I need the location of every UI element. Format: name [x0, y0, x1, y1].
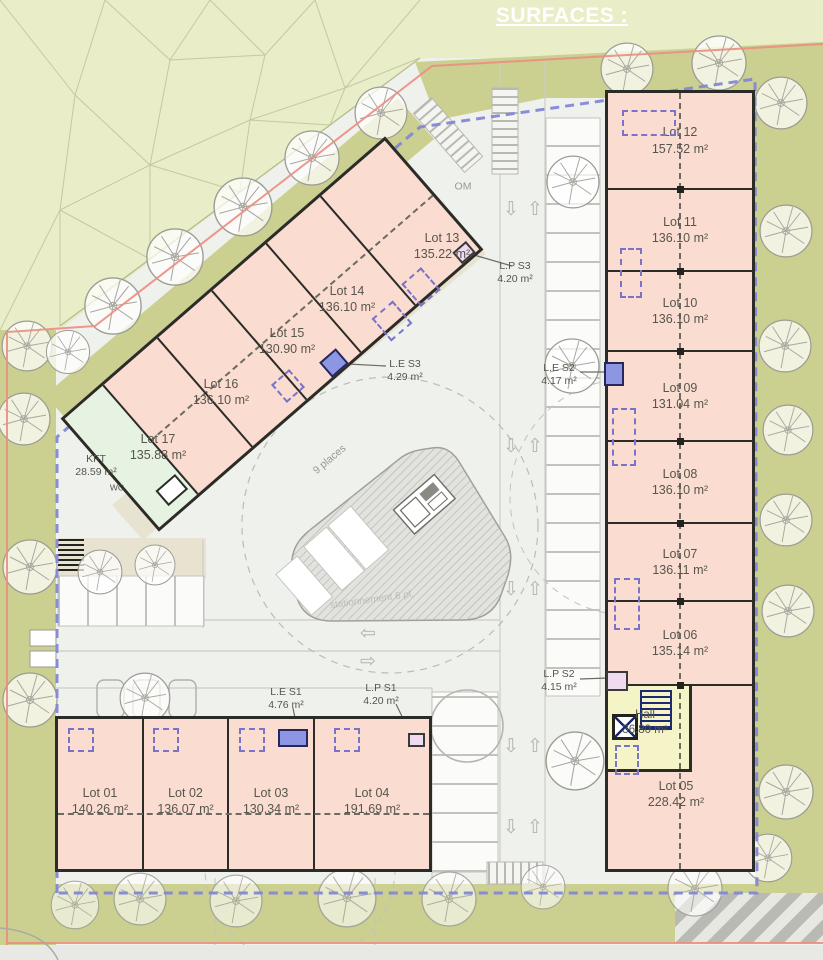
- door-clearance: [615, 745, 639, 775]
- lot-17-label: Lot 17135.88 m²: [130, 431, 186, 464]
- lot-area: 191.69 m²: [344, 801, 400, 817]
- lot-area: 140.26 m²: [72, 801, 128, 817]
- door-clearance: [622, 110, 676, 136]
- arrow-up-icon: ⇧: [527, 437, 543, 456]
- lp-s3-label: L.P S34.20 m²: [497, 260, 533, 286]
- door-clearance: [612, 408, 636, 466]
- lp-s2-label: L.P S24.15 m²: [541, 668, 577, 694]
- lot-15-label: Lot 15130.90 m²: [259, 325, 315, 358]
- le-s2-label: L.E S24.17 m²: [541, 362, 577, 388]
- lot-name: Lot 04: [355, 785, 390, 801]
- door-clearance: [614, 578, 640, 630]
- lot-name: Lot 07: [663, 546, 698, 562]
- lot-14-label: Lot 14136.10 m²: [319, 283, 375, 316]
- lot-name: Lot 03: [254, 785, 289, 801]
- page-title: SURFACES :: [452, 4, 672, 28]
- lot-area: 131.04 m²: [652, 396, 708, 412]
- lot-name: Lot 09: [663, 380, 698, 396]
- arrow-left-icon: ⇦: [360, 624, 376, 643]
- lp-s1-label: L.P S14.20 m²: [363, 682, 399, 708]
- lot-name: Lot 10: [663, 295, 698, 311]
- lot-area: 136.10 m²: [652, 482, 708, 498]
- lot-name: Lot 08: [663, 466, 698, 482]
- le-s1-room: [278, 729, 308, 747]
- lot-area: 135.14 m²: [652, 643, 708, 659]
- arrow-down-icon: ⇩: [503, 437, 519, 456]
- lot-name: Lot 11: [663, 214, 697, 230]
- arrow-down-icon: ⇩: [503, 737, 519, 756]
- door-clearance: [334, 728, 360, 752]
- door-clearance: [68, 728, 94, 752]
- lot-area: 136.10 m²: [652, 311, 708, 327]
- lot-13-label: Lot 13135.22 m²: [414, 230, 470, 263]
- lot-05-label: Lot 05228.42 m²: [648, 778, 704, 811]
- arrow-up-icon: ⇧: [527, 200, 543, 219]
- lot-16-label: Lot 16136.10 m²: [193, 376, 249, 409]
- lot-area: 136.11 m²: [652, 562, 707, 578]
- door-clearance: [153, 728, 179, 752]
- arrow-down-icon: ⇩: [503, 580, 519, 599]
- lp-s2-room: [606, 671, 628, 691]
- arrow-down-icon: ⇩: [503, 200, 519, 219]
- arrow-up-icon: ⇧: [527, 580, 543, 599]
- site-plan: SURFACES : Lot 12 157.52 m² Lot 11 136.1…: [0, 0, 823, 960]
- lot-name: Lot 01: [83, 785, 118, 801]
- arrow-right-icon: ⇨: [360, 652, 376, 671]
- lot-name: Lot 02: [168, 785, 203, 801]
- lot-name: Lot 06: [663, 627, 698, 643]
- le-s3-label: L.E S34.29 m²: [387, 358, 423, 384]
- lot-area: 157.52 m²: [652, 141, 708, 157]
- door-clearance: [620, 248, 642, 298]
- om-label: OM: [455, 180, 472, 193]
- lp-s1-room: [408, 733, 425, 747]
- lot-area: 130.34 m²: [243, 801, 299, 817]
- le-s2-room: [604, 362, 624, 386]
- le-s1-label: L.E S14.76 m²: [268, 686, 304, 712]
- door-clearance: [239, 728, 265, 752]
- arrow-up-icon: ⇧: [527, 737, 543, 756]
- arrow-down-icon: ⇩: [503, 818, 519, 837]
- kft-label: KFT28.59 m²: [75, 453, 116, 479]
- lot-area: 136.10 m²: [652, 230, 708, 246]
- lot-area: 136.07 m²: [157, 801, 213, 817]
- arrow-up-icon: ⇧: [527, 818, 543, 837]
- hall-label: Hall36.80 m²: [622, 708, 667, 738]
- wc-room: [155, 474, 188, 506]
- wc-label: WC: [110, 482, 124, 493]
